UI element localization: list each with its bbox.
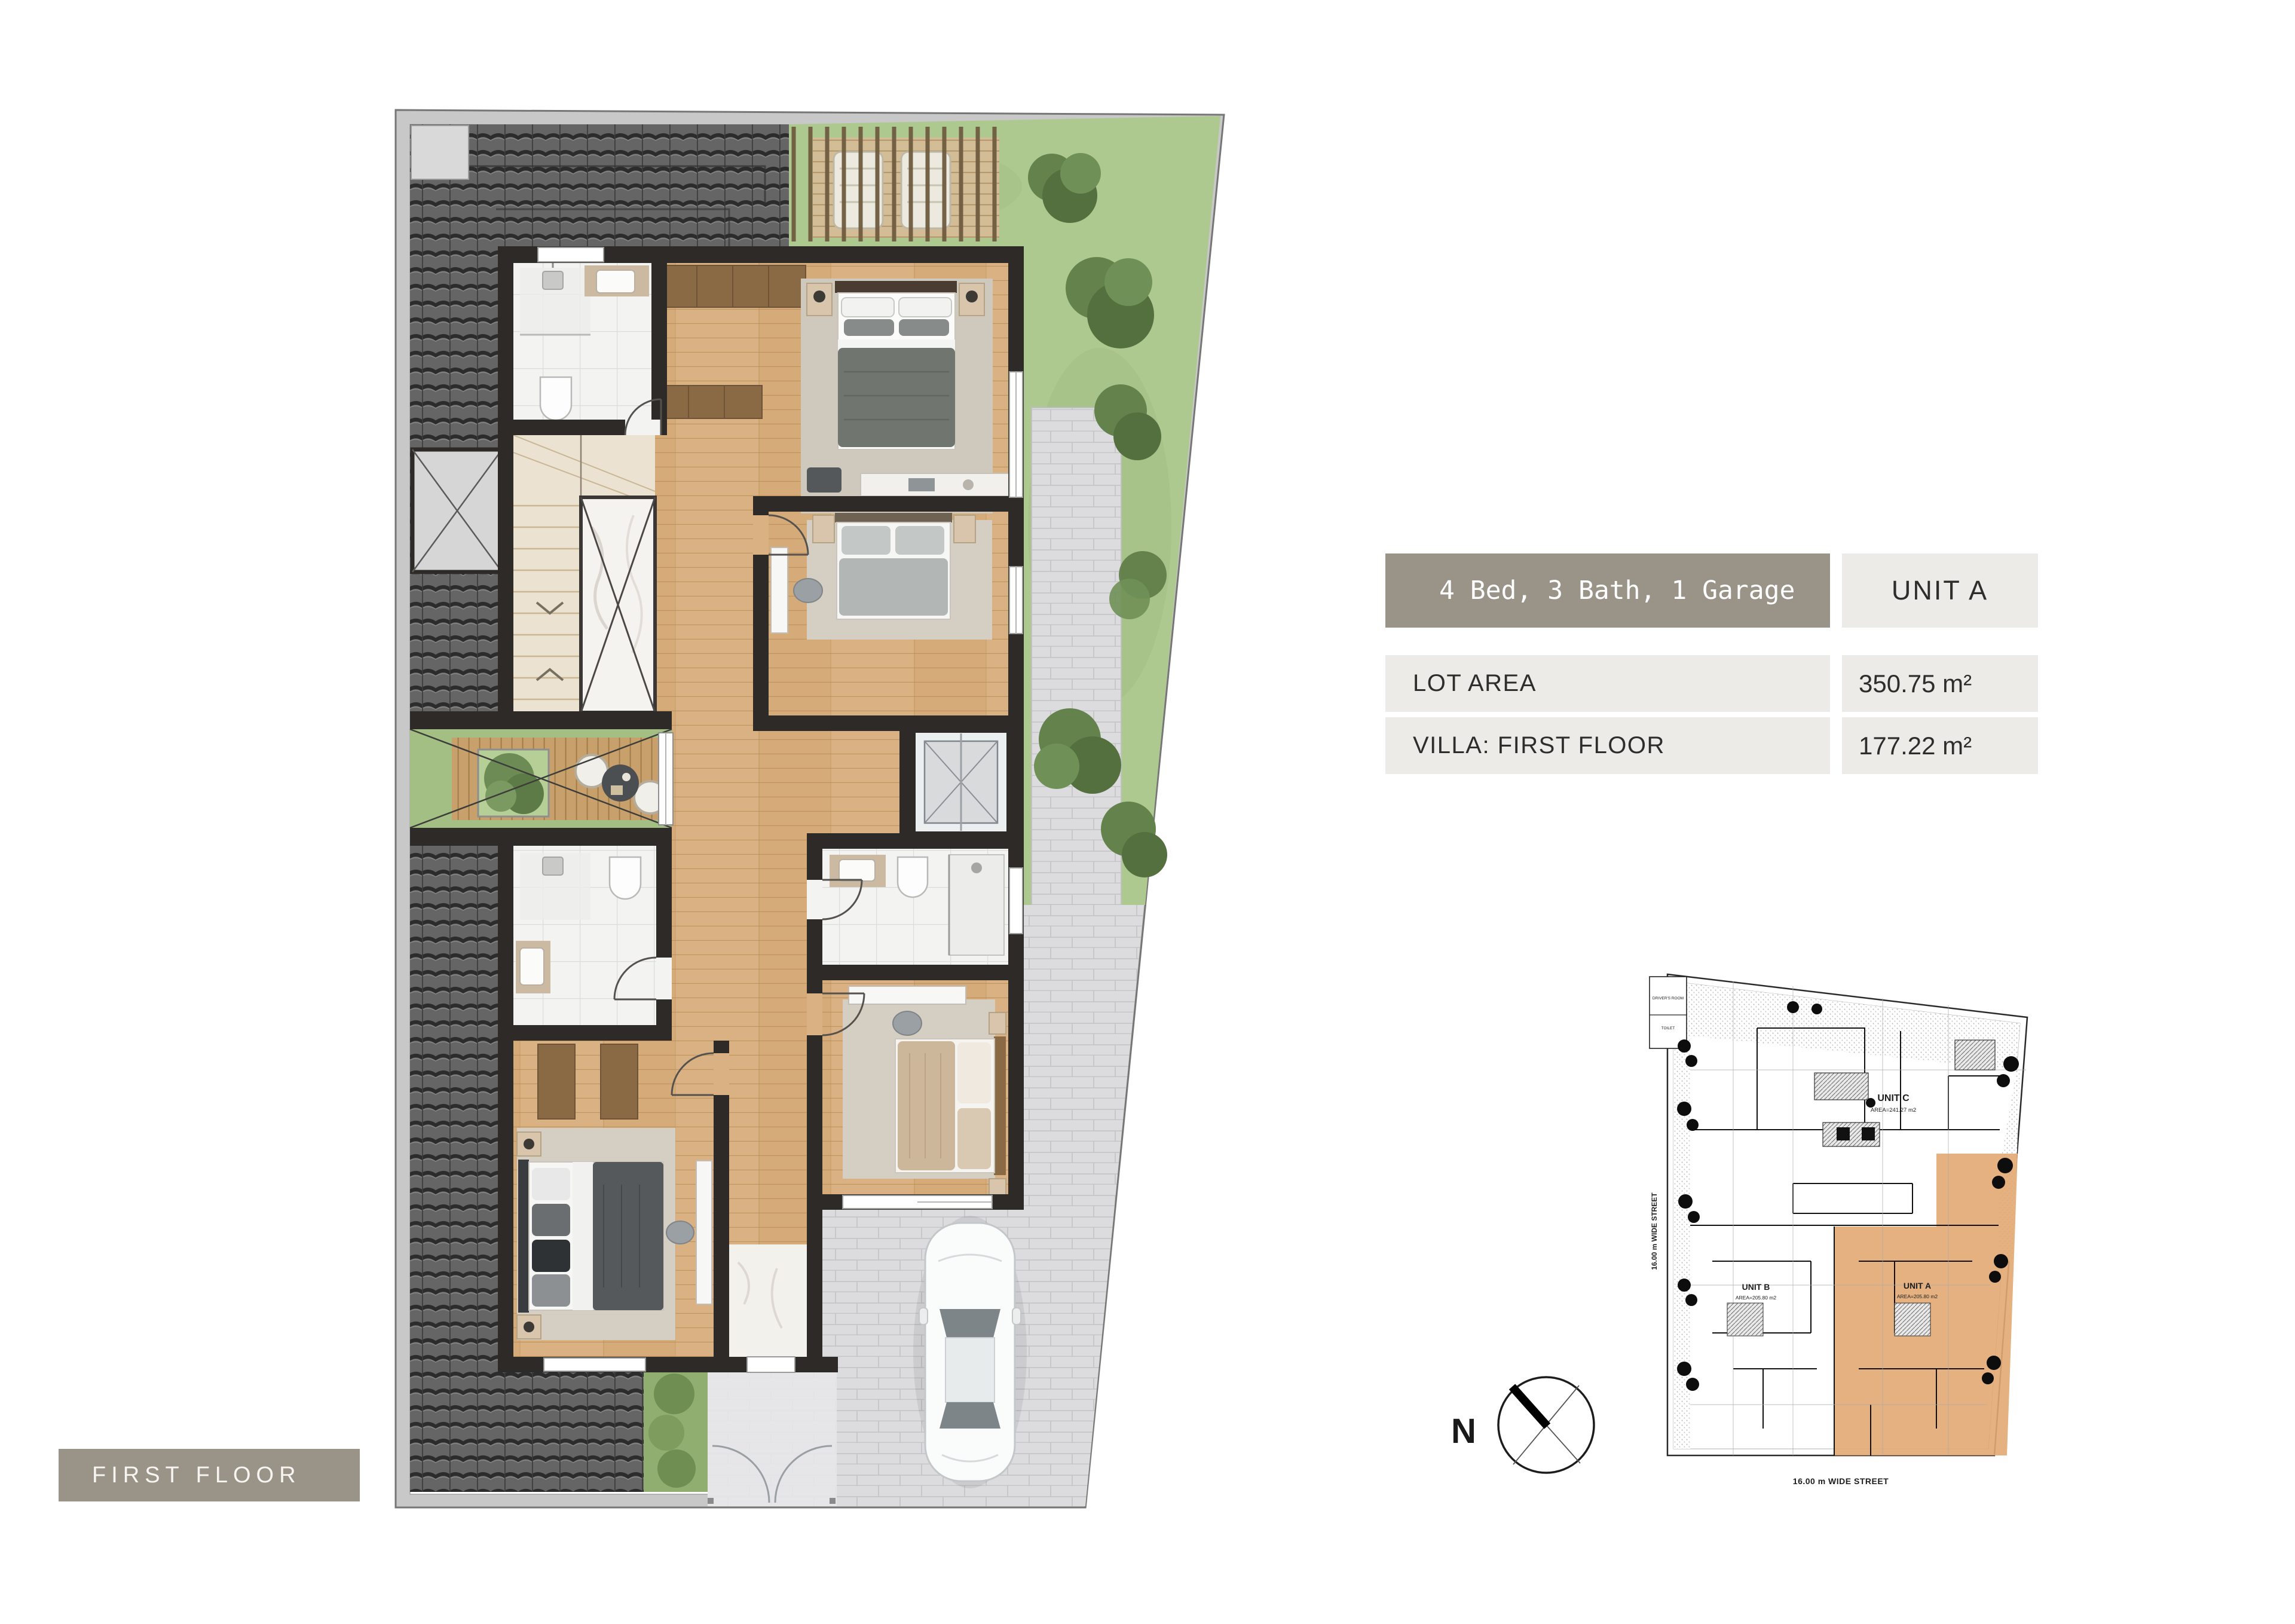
toilet-icon [610, 857, 641, 899]
unit-c-area: AREA=241.27 m2 [1871, 1107, 1916, 1114]
chair-icon [794, 579, 822, 602]
unit-c-label: UNIT C [1877, 1093, 1910, 1103]
compass-needle [1512, 1387, 1547, 1426]
courtyard [410, 729, 673, 828]
outdoor-dining [1955, 1040, 1995, 1070]
lamp-icon [524, 1139, 534, 1149]
sink-icon [520, 948, 544, 985]
lamp-icon [966, 290, 978, 302]
unit-a-area: AREA=205.80 m2 [1897, 1293, 1938, 1299]
hedge [644, 1372, 708, 1492]
duvet [838, 348, 955, 447]
unit-summary: 4 Bed, 3 Bath, 1 Garage [1385, 553, 1830, 628]
bedroom-4 [843, 986, 1006, 1200]
unit-name: UNIT A [1842, 553, 2038, 628]
floor-badge: FIRST FLOOR [59, 1449, 360, 1501]
bathroom-2 [513, 846, 656, 1025]
wardrobe [601, 1044, 638, 1119]
unit-b-label: UNIT B [1742, 1282, 1770, 1292]
master-bedroom [801, 279, 1010, 513]
villa-floor-value: 177.22 m² [1842, 717, 2038, 774]
desk [849, 986, 966, 1004]
entry-walk [708, 1372, 837, 1506]
table-header-row: 4 Bed, 3 Bath, 1 Garage UNIT A [1385, 553, 2038, 628]
chair-icon [893, 1011, 922, 1035]
skylight [412, 449, 502, 572]
annex-block: DRIVER'S ROOM TOILET [1650, 977, 1687, 1048]
lot-area-label: LOT AREA [1385, 655, 1830, 712]
entry-vestibule [729, 1244, 807, 1357]
toilet-icon [898, 857, 928, 897]
duvet [898, 1041, 955, 1170]
info-table: 4 Bed, 3 Bath, 1 Garage UNIT A LOT AREA … [1385, 553, 2038, 779]
annex-room-label: DRIVER'S ROOM [1653, 996, 1684, 1001]
stair-void [581, 497, 655, 712]
sink-icon [839, 860, 875, 881]
unit-a-label: UNIT A [1904, 1281, 1931, 1290]
nightstand [989, 1013, 1006, 1034]
villa-floor-label: VILLA: FIRST FLOOR [1385, 717, 1830, 774]
nightstand [813, 515, 834, 543]
elevator [914, 731, 1008, 833]
desk [771, 548, 788, 633]
bathroom-1 [513, 263, 651, 420]
desk [696, 1161, 712, 1304]
bed-headboard [835, 281, 957, 293]
lamp-icon [813, 290, 825, 302]
unit-b-area: AREA=205.80 m2 [1736, 1295, 1777, 1301]
shower-icon [543, 857, 563, 875]
shower-icon [543, 271, 563, 289]
street-label-left: 16.00 m WIDE STREET [1650, 1192, 1658, 1270]
table-row-villa-area: VILLA: FIRST FLOOR 177.22 m² [1385, 717, 2038, 774]
table-row-lot-area: LOT AREA 350.75 m² [1385, 655, 2038, 712]
wardrobe [538, 1044, 575, 1119]
toilet-icon [540, 377, 571, 420]
dresser [861, 473, 1010, 496]
bed-headboard [518, 1160, 529, 1313]
lamp-icon [524, 1322, 534, 1332]
street-label-bottom: 16.00 m WIDE STREET [1793, 1476, 1889, 1486]
shower-icon [971, 863, 982, 873]
car-icon [913, 1216, 1027, 1488]
nightstand [954, 515, 975, 543]
bed-headboard [835, 513, 952, 522]
laptop-icon [908, 478, 935, 491]
bed-headboard [994, 1036, 1006, 1175]
floor-plan-rendering [394, 109, 1226, 1509]
coffee-table [602, 764, 639, 802]
pergola [794, 127, 999, 241]
annex-toilet-label: TOILET [1661, 1026, 1675, 1030]
ottoman [807, 467, 841, 493]
chair-icon [666, 1221, 694, 1244]
compass-north-label: N [1451, 1412, 1476, 1451]
duvet [839, 558, 948, 616]
site-plan-minimap: DRIVER'S ROOM TOILET [1614, 950, 2050, 1509]
lot-area-value: 350.75 m² [1842, 655, 2038, 712]
compass-icon: N [1428, 1352, 1617, 1501]
sink-icon [596, 270, 635, 293]
